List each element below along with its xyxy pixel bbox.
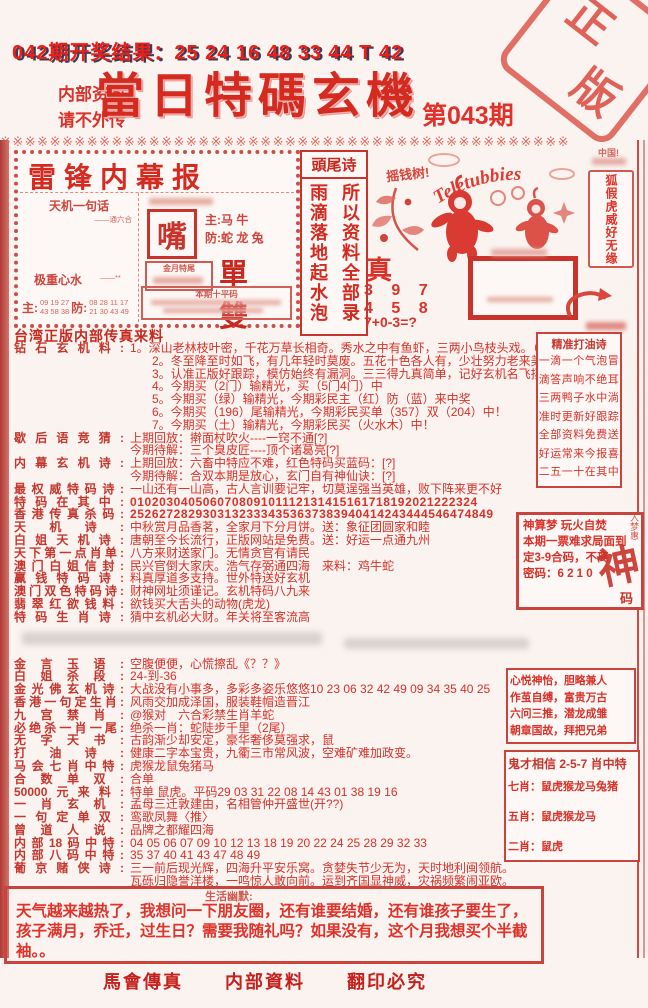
redacted-gap (14, 624, 536, 658)
blurred-text (163, 308, 263, 313)
dream-calc-box: 神算梦 玩火自焚 本期一票难求局面到 定3-9合码，不离 密码：6 2 1 0 … (516, 512, 644, 610)
footer-item: 翻印必究 (347, 968, 427, 994)
code-seal-character: 码 (620, 588, 633, 607)
fang-label: 防: (71, 299, 87, 316)
tip-line: 九宫禁肖:@猴对 六合彩禁生肖羊蛇 (14, 709, 536, 722)
footer: 馬會傳真内部資料翻印必究 (0, 968, 530, 994)
tip-line-text: 猜中玄机必大财。年关将至客流高 (124, 611, 310, 624)
tianji-label: 天机一句话 (20, 193, 138, 214)
authentic-stamp: 正 版 (494, 0, 648, 148)
tip-line-text: 健康二字本宝贵，九衢三市常风波，空难矿难加政变。 (124, 747, 418, 760)
tip-line: 香港一句定生肖:风雨交加成泽国，服装鞋帽造晋江 (14, 696, 536, 709)
tip-lines-list: 钻石玄机料:1。深山老林枝叶密，千花万草长相奇。秀水之中有鱼虾，三两小鸟枝头戏。… (14, 342, 536, 888)
blurred-text (149, 198, 213, 205)
tip-line-label: 特码生肖诗: (14, 611, 124, 624)
doggerel-line: 好运常来今报喜 (538, 445, 620, 464)
tip-line-text: 风雨交加成泽国，服装鞋帽造晋江 (124, 696, 310, 709)
blurred-digits (153, 277, 203, 284)
flat-codes-box: 本期十平码 (141, 286, 292, 320)
curved-arrow-icon (562, 278, 614, 320)
tail-box-title: 金月特尾 (147, 263, 211, 274)
flat-codes-title: 本期十平码 (143, 288, 290, 300)
zodiac-pick-line: 五肖：鼠虎猴龙马 (508, 802, 636, 832)
tianji-sub: ——通六合 (20, 214, 138, 225)
tip-line: 一句定单双:鸾歌凤舞〈推〉 (14, 811, 536, 824)
idiom-lines: 心悦神怡，胆略兼人作茧自缚，富贵万古六问三推，潜龙成雏朝章国故，拜把兄弟 (510, 673, 632, 739)
doggerel-lines: 一滴一个气泡冒滴答声响不绝耳三两鸭子水中淌准时更新好跟踪全部资料免费送好运常来今… (538, 352, 620, 482)
tip-line-label: 钻石玄机料: (14, 342, 124, 355)
tip-line-label: 歇后语竞猜: (14, 432, 124, 445)
tip-line-label: 合数单双: (14, 773, 124, 786)
fang-numbers: 08 28 11 17 (89, 298, 129, 307)
tip-line: 今期待解：合双本期是放心，玄门自有神仙诀：[?] (14, 470, 536, 483)
doggerel-line: 准时更新好跟踪 (538, 408, 620, 427)
fang-numbers: 21 30 43 49 (89, 307, 129, 316)
tip-line-label: 打油诗: (14, 747, 124, 760)
tip-line-label: 翡翠红欲钱料: (14, 598, 124, 611)
svg-text:Teletubbies: Teletubbies (430, 164, 522, 208)
blurred-text (491, 249, 547, 256)
doggerel-line: 二五一十在其中 (538, 463, 620, 482)
footer-item: 馬會傳真 (103, 968, 183, 994)
leifeng-title: 雷锋内幕报 (28, 156, 208, 196)
zhu-label: 主: (22, 299, 38, 316)
tip-line-text: 2。冬至降至时如飞，有几年轻时莫废。五花十色各人有，少壮努力老来美。（蝇） (124, 355, 585, 368)
doggerel-line: 一滴一个气泡冒 (538, 352, 620, 371)
tip-line: 翡翠红欲钱料:欲钱买大舌头的动物(虎龙) (14, 598, 536, 611)
zodiac-pick-line: 二肖：鼠虎 (508, 832, 636, 862)
zodiac-pick-lines: 七肖：鼠虎猴龙马兔猪五肖：鼠虎猴龙马二肖：鼠虎 (508, 772, 636, 862)
tip-line: 白姐天机诗:唐朝至今长流行，正版网站是免费。送：好运一点通九州 (14, 534, 536, 547)
tip-line-text: 欲钱买大舌头的动物(虎龙) (124, 598, 270, 611)
main-animals: 主:马 牛 (205, 211, 248, 228)
guard-animals: 防:蛇 龙 兔 (205, 229, 264, 246)
tip-line-label: 内幕玄机诗: (14, 457, 124, 470)
tip-line: 天下第一点肖单:八方来财送家门。无情贪官有请民 (14, 547, 536, 560)
tip-line-label: 天下第一点肖单: (14, 547, 124, 560)
stamp-char: 版 (560, 51, 634, 129)
blurred-caption (586, 322, 626, 330)
tip-line-text: 今期待解：合双本期是放心，玄门自有神仙诀：[?] (124, 470, 395, 483)
poem-box-title: 頭尾诗 (302, 152, 366, 179)
tip-line-text: 品牌之都耀四海 (124, 824, 214, 837)
stamp-char: 正 (556, 0, 630, 56)
tip-line-label: 马会七肖中特: (14, 760, 124, 773)
tip-line-label: 一句定单双: (14, 811, 124, 824)
idiom-banner: 狐假虎威好无缘 (588, 170, 634, 268)
tip-line-text: 7。今期买（土）输精光，今期彩民买（火水木）中！ (124, 419, 435, 432)
tip-line-text: 虎猴龙鼠兔猪马 (124, 760, 214, 773)
tip-line-text: 6。今期买（196）尾输精光，今期彩民买单（357）双（204）中！ (124, 406, 507, 419)
tip-line: 特码生肖诗:猜中玄机必大财。年关将至客流高 (14, 611, 536, 624)
idiom-line: 心悦神怡，胆略兼人 (510, 673, 632, 690)
flower-branch-art (356, 178, 430, 256)
tip-line-text: 唐朝至今长流行，正版网站是免费。送：好运一点通九州 (124, 534, 430, 547)
tip-line: 2。冬至降至时如飞，有几年轻时莫废。五花十色各人有，少壮努力老来美。（蝇） (14, 355, 536, 368)
tip-line: 合数单双:合单 (14, 773, 536, 786)
idiom-banner-text: 狐假虎威好无缘 (605, 174, 617, 265)
tip-line-label: 葡京赌侠诗: (14, 862, 124, 875)
idiom-line: 六问三推，潜龙成雏 (510, 706, 632, 723)
tip-line: 7。今期买（土）输精光，今期彩民买（火水木）中！ (14, 419, 536, 432)
zodiac-box-title: 鬼才相信 2-5-7 肖中特 (508, 755, 636, 772)
tip-numbers-row1: 3 9 7 (364, 282, 435, 300)
tip-line-label: 最权威特码诗: (14, 483, 124, 496)
tip-line-text: 合单 (124, 773, 154, 786)
leifeng-left-cell: 天机一句话 ——通六合 极重心水 ——** 主: 09 19 27 43 58 … (20, 193, 139, 322)
blurred-text (151, 300, 281, 305)
tip-line: 6。今期买（196）尾输精光，今期彩民买单（357）双（204）中！ (14, 406, 536, 419)
idiom-line: 作茧自缚，富贵万古 (510, 690, 632, 707)
zodiac-pick-line: 七肖：鼠虎猴龙马兔猪 (508, 772, 636, 802)
tip-line: 打油诗:健康二字本宝贵，九衢三市常风波，空难矿难加政变。 (14, 747, 536, 760)
issue-number: 第043期 (422, 96, 514, 132)
doggerel-box: 精准打油诗 一滴一个气泡冒滴答声响不绝耳三两鸭子水中淌准时更新好跟踪全部资料免费… (536, 332, 622, 488)
tip-line-label: 白姐天机诗: (14, 534, 124, 547)
doggerel-line: 三两鸭子水中淌 (538, 389, 620, 408)
tip-formula: 7+0-3=? (364, 314, 417, 330)
idiom-line: 朝章国故，拜把兄弟 (510, 723, 632, 740)
doggerel-title: 精准打油诗 (538, 336, 620, 352)
hint-character-box: 嘴 (147, 209, 197, 259)
tip-line-text: @猴对 六合彩禁生肖羊蛇 (124, 709, 274, 722)
left-border-bar (0, 140, 9, 958)
tip-line-text: 鸾歌凤舞〈推〉 (124, 811, 214, 824)
page-title: 當日特碼玄機 (96, 56, 420, 126)
tip-line-text: 大战没有小事多，多彩多姿乐悠悠10 23 06 32 42 49 09 34 3… (124, 683, 490, 696)
tip-line: 马会七肖中特:虎猴龙鼠兔猪马 (14, 760, 536, 773)
tip-line: 曾道人说:品牌之都耀四海 (14, 824, 536, 837)
idiom-pair-box: 心悦神怡，胆略兼人作茧自缚，富贵万古六问三推，潜龙成雏朝章国故，拜把兄弟 (506, 668, 636, 744)
humor-text: 天气越来越热了，我想问一下朋友圈，还有谁要结婚，还有谁孩子要生了，孩子满月，乔迁… (16, 902, 528, 961)
tip-line-label: 曾道人说: (14, 824, 124, 837)
tip-line-text: 一山还有一山高，古人言训要记牢，切莫逞强当英雄，败下阵来更不好 (124, 483, 502, 496)
footer-item: 内部資料 (225, 968, 305, 994)
zhu-numbers: 09 19 27 (40, 298, 69, 307)
tip-line-text: 1。深山老林枝叶密，千花万草长相奇。秀水之中有鱼虾，三两小鸟枝头戏。（蟾） (124, 342, 563, 355)
tip-line-label: 香港一句定生肖: (14, 696, 124, 709)
poem-column-left: 雨滴落地起水泡 (309, 183, 327, 333)
xinshui-label: 极重心水 (34, 271, 82, 288)
leifeng-right-cell: 嘴 主:马 牛 防:蛇 龙 兔 金月特尾 單 雙 本期十平码 (139, 193, 294, 322)
tip-line-label: 九宫禁肖: (14, 709, 124, 722)
tip-line: 最权威特码诗:一山还有一山高，古人言训要记牢，切莫逞强当英雄，败下阵来更不好 (14, 483, 536, 496)
tip-line-text: 八方来财送家门。无情贪官有请民 (124, 547, 310, 560)
leifeng-news-box: 雷锋内幕报 天机一句话 ——通六合 极重心水 ——** 主: 09 19 27 … (14, 150, 300, 328)
tip-line-label: 金光佛玄机诗: (14, 683, 124, 696)
blurred-text (487, 297, 553, 302)
teletubbies-illustration: Teletubbies (426, 146, 588, 262)
tip-line: 金光佛玄机诗:大战没有小事多，多彩多姿乐悠悠10 23 06 32 42 49 … (14, 683, 536, 696)
xinshui-sub: ——** (100, 273, 121, 282)
doggerel-line: 全部资料免费送 (538, 426, 620, 445)
tip-line: 钻石玄机料:1。深山老林枝叶密，千花万草长相奇。秀水之中有鱼虾，三两小鸟枝头戏。… (14, 342, 536, 355)
doggerel-line: 滴答声响不绝耳 (538, 371, 620, 390)
zhu-numbers: 43 58 38 (40, 307, 69, 316)
zodiac-pick-box: 鬼才相信 2-5-7 肖中特 七肖：鼠虎猴龙马兔猪五肖：鼠虎猴龙马二肖：鼠虎 (504, 750, 640, 862)
blurred-text (592, 158, 626, 165)
